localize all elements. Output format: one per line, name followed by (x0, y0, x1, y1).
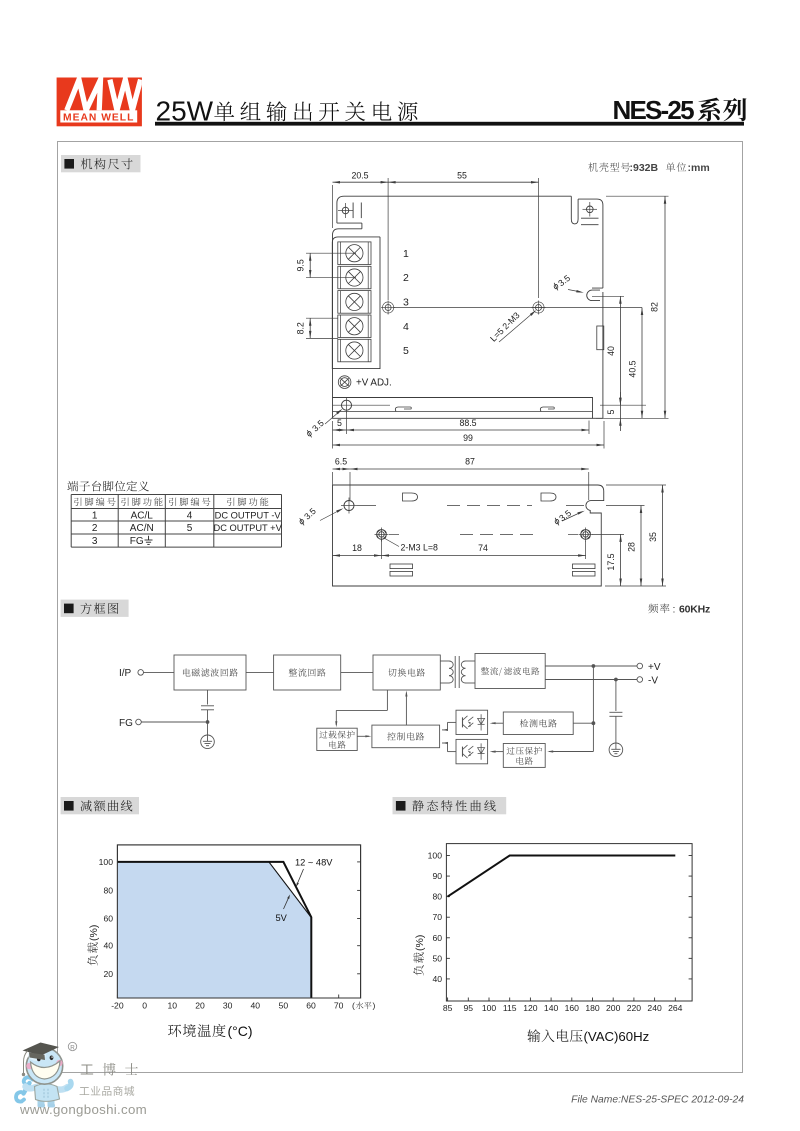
svg-text:87: 87 (465, 457, 475, 467)
svg-text:4: 4 (187, 511, 193, 522)
svg-text:I/P: I/P (119, 668, 132, 679)
svg-text:74: 74 (478, 543, 488, 553)
svg-text:264: 264 (668, 1003, 683, 1013)
svg-text:2-M3 L=8: 2-M3 L=8 (401, 543, 439, 553)
svg-text:100: 100 (482, 1003, 497, 1013)
svg-text:-20: -20 (111, 1001, 124, 1011)
svg-text:40: 40 (251, 1001, 261, 1011)
svg-text:220: 220 (627, 1003, 642, 1013)
svg-text:1: 1 (403, 248, 409, 260)
svg-text:82: 82 (650, 302, 660, 312)
svg-text:115: 115 (503, 1003, 517, 1013)
svg-text:3: 3 (403, 297, 409, 309)
svg-text:28: 28 (627, 542, 637, 552)
svg-text:140: 140 (544, 1003, 559, 1013)
svg-text:30: 30 (223, 1001, 233, 1011)
svg-text:5: 5 (403, 345, 409, 357)
svg-text:80: 80 (432, 892, 442, 902)
svg-text:60: 60 (306, 1001, 316, 1011)
svg-text:5: 5 (337, 418, 342, 428)
svg-text:20: 20 (195, 1001, 205, 1011)
svg-text:(: ( (352, 1001, 355, 1011)
svg-text:18: 18 (352, 543, 362, 553)
svg-text:MEAN WELL: MEAN WELL (63, 112, 134, 123)
svg-text:(%): (%) (88, 925, 100, 941)
svg-text:88.5: 88.5 (459, 418, 476, 428)
svg-text:2: 2 (403, 272, 409, 284)
svg-text:40: 40 (432, 974, 442, 984)
svg-text:240: 240 (647, 1003, 662, 1013)
svg-text:FG: FG (119, 718, 133, 729)
svg-text:5V: 5V (276, 913, 288, 923)
svg-text:40: 40 (103, 941, 113, 951)
svg-text:-V: -V (648, 675, 658, 686)
svg-text:NES-25: NES-25 (613, 95, 695, 125)
svg-text:180: 180 (585, 1003, 600, 1013)
svg-text:5: 5 (187, 523, 193, 534)
svg-text:85: 85 (443, 1003, 453, 1013)
svg-text:35: 35 (648, 532, 658, 542)
svg-text::mm: :mm (688, 162, 710, 174)
svg-text:100: 100 (428, 851, 443, 861)
svg-text:99: 99 (463, 433, 473, 443)
svg-text:(°C): (°C) (228, 1023, 253, 1039)
svg-text:+V: +V (648, 662, 661, 673)
svg-text:200: 200 (606, 1003, 621, 1013)
svg-text:AC/L: AC/L (131, 511, 154, 522)
svg-text:20: 20 (103, 969, 113, 979)
svg-text:95: 95 (464, 1003, 474, 1013)
svg-text:File Name:NES-25-SPEC 2012-0: File Name:NES-25-SPEC 2012-09-24 (571, 1095, 744, 1106)
svg-text:(%): (%) (414, 935, 426, 951)
svg-text:160: 160 (565, 1003, 580, 1013)
svg-text:DC OUTPUT -V: DC OUTPUT -V (215, 511, 282, 521)
svg-text:50: 50 (432, 953, 442, 963)
svg-text:17.5: 17.5 (606, 553, 616, 570)
svg-text:90: 90 (432, 871, 442, 881)
svg-text:10: 10 (168, 1001, 178, 1011)
svg-text:FG: FG (130, 536, 144, 547)
svg-text:50: 50 (279, 1001, 289, 1011)
svg-text:www.gongboshi.com: www.gongboshi.com (19, 1102, 147, 1117)
svg-text:DC OUTPUT +V: DC OUTPUT +V (214, 523, 283, 533)
svg-text:1: 1 (92, 511, 98, 522)
svg-text:20.5: 20.5 (351, 171, 368, 181)
svg-text:70: 70 (432, 912, 442, 922)
svg-text:40.5: 40.5 (628, 360, 638, 377)
svg-text:60: 60 (103, 914, 113, 924)
svg-text:(VAC)60Hz: (VAC)60Hz (584, 1029, 650, 1044)
svg-text:40: 40 (606, 346, 616, 356)
svg-text:): ) (373, 1001, 376, 1011)
svg-text:+V ADJ.: +V ADJ. (356, 378, 392, 389)
svg-text:8.2: 8.2 (296, 322, 306, 334)
svg-text:AC/N: AC/N (130, 523, 154, 534)
svg-text:5: 5 (606, 409, 616, 414)
svg-text:80: 80 (103, 885, 113, 895)
svg-text:3: 3 (92, 536, 98, 547)
svg-text:120: 120 (523, 1003, 538, 1013)
svg-text:4: 4 (403, 321, 409, 333)
svg-text:60KHz: 60KHz (679, 603, 710, 615)
svg-text::: : (673, 603, 676, 615)
svg-text:70: 70 (334, 1001, 344, 1011)
svg-text:2: 2 (92, 523, 98, 534)
svg-text:9.5: 9.5 (296, 259, 306, 271)
svg-text::932B: :932B (630, 162, 659, 174)
svg-text:55: 55 (457, 171, 467, 181)
svg-text:R: R (70, 1044, 75, 1051)
svg-text:6.5: 6.5 (335, 457, 347, 467)
svg-text:100: 100 (99, 857, 114, 867)
svg-text:12 ~ 48V: 12 ~ 48V (295, 858, 333, 868)
svg-text:0: 0 (142, 1001, 147, 1011)
svg-text:60: 60 (432, 933, 442, 943)
